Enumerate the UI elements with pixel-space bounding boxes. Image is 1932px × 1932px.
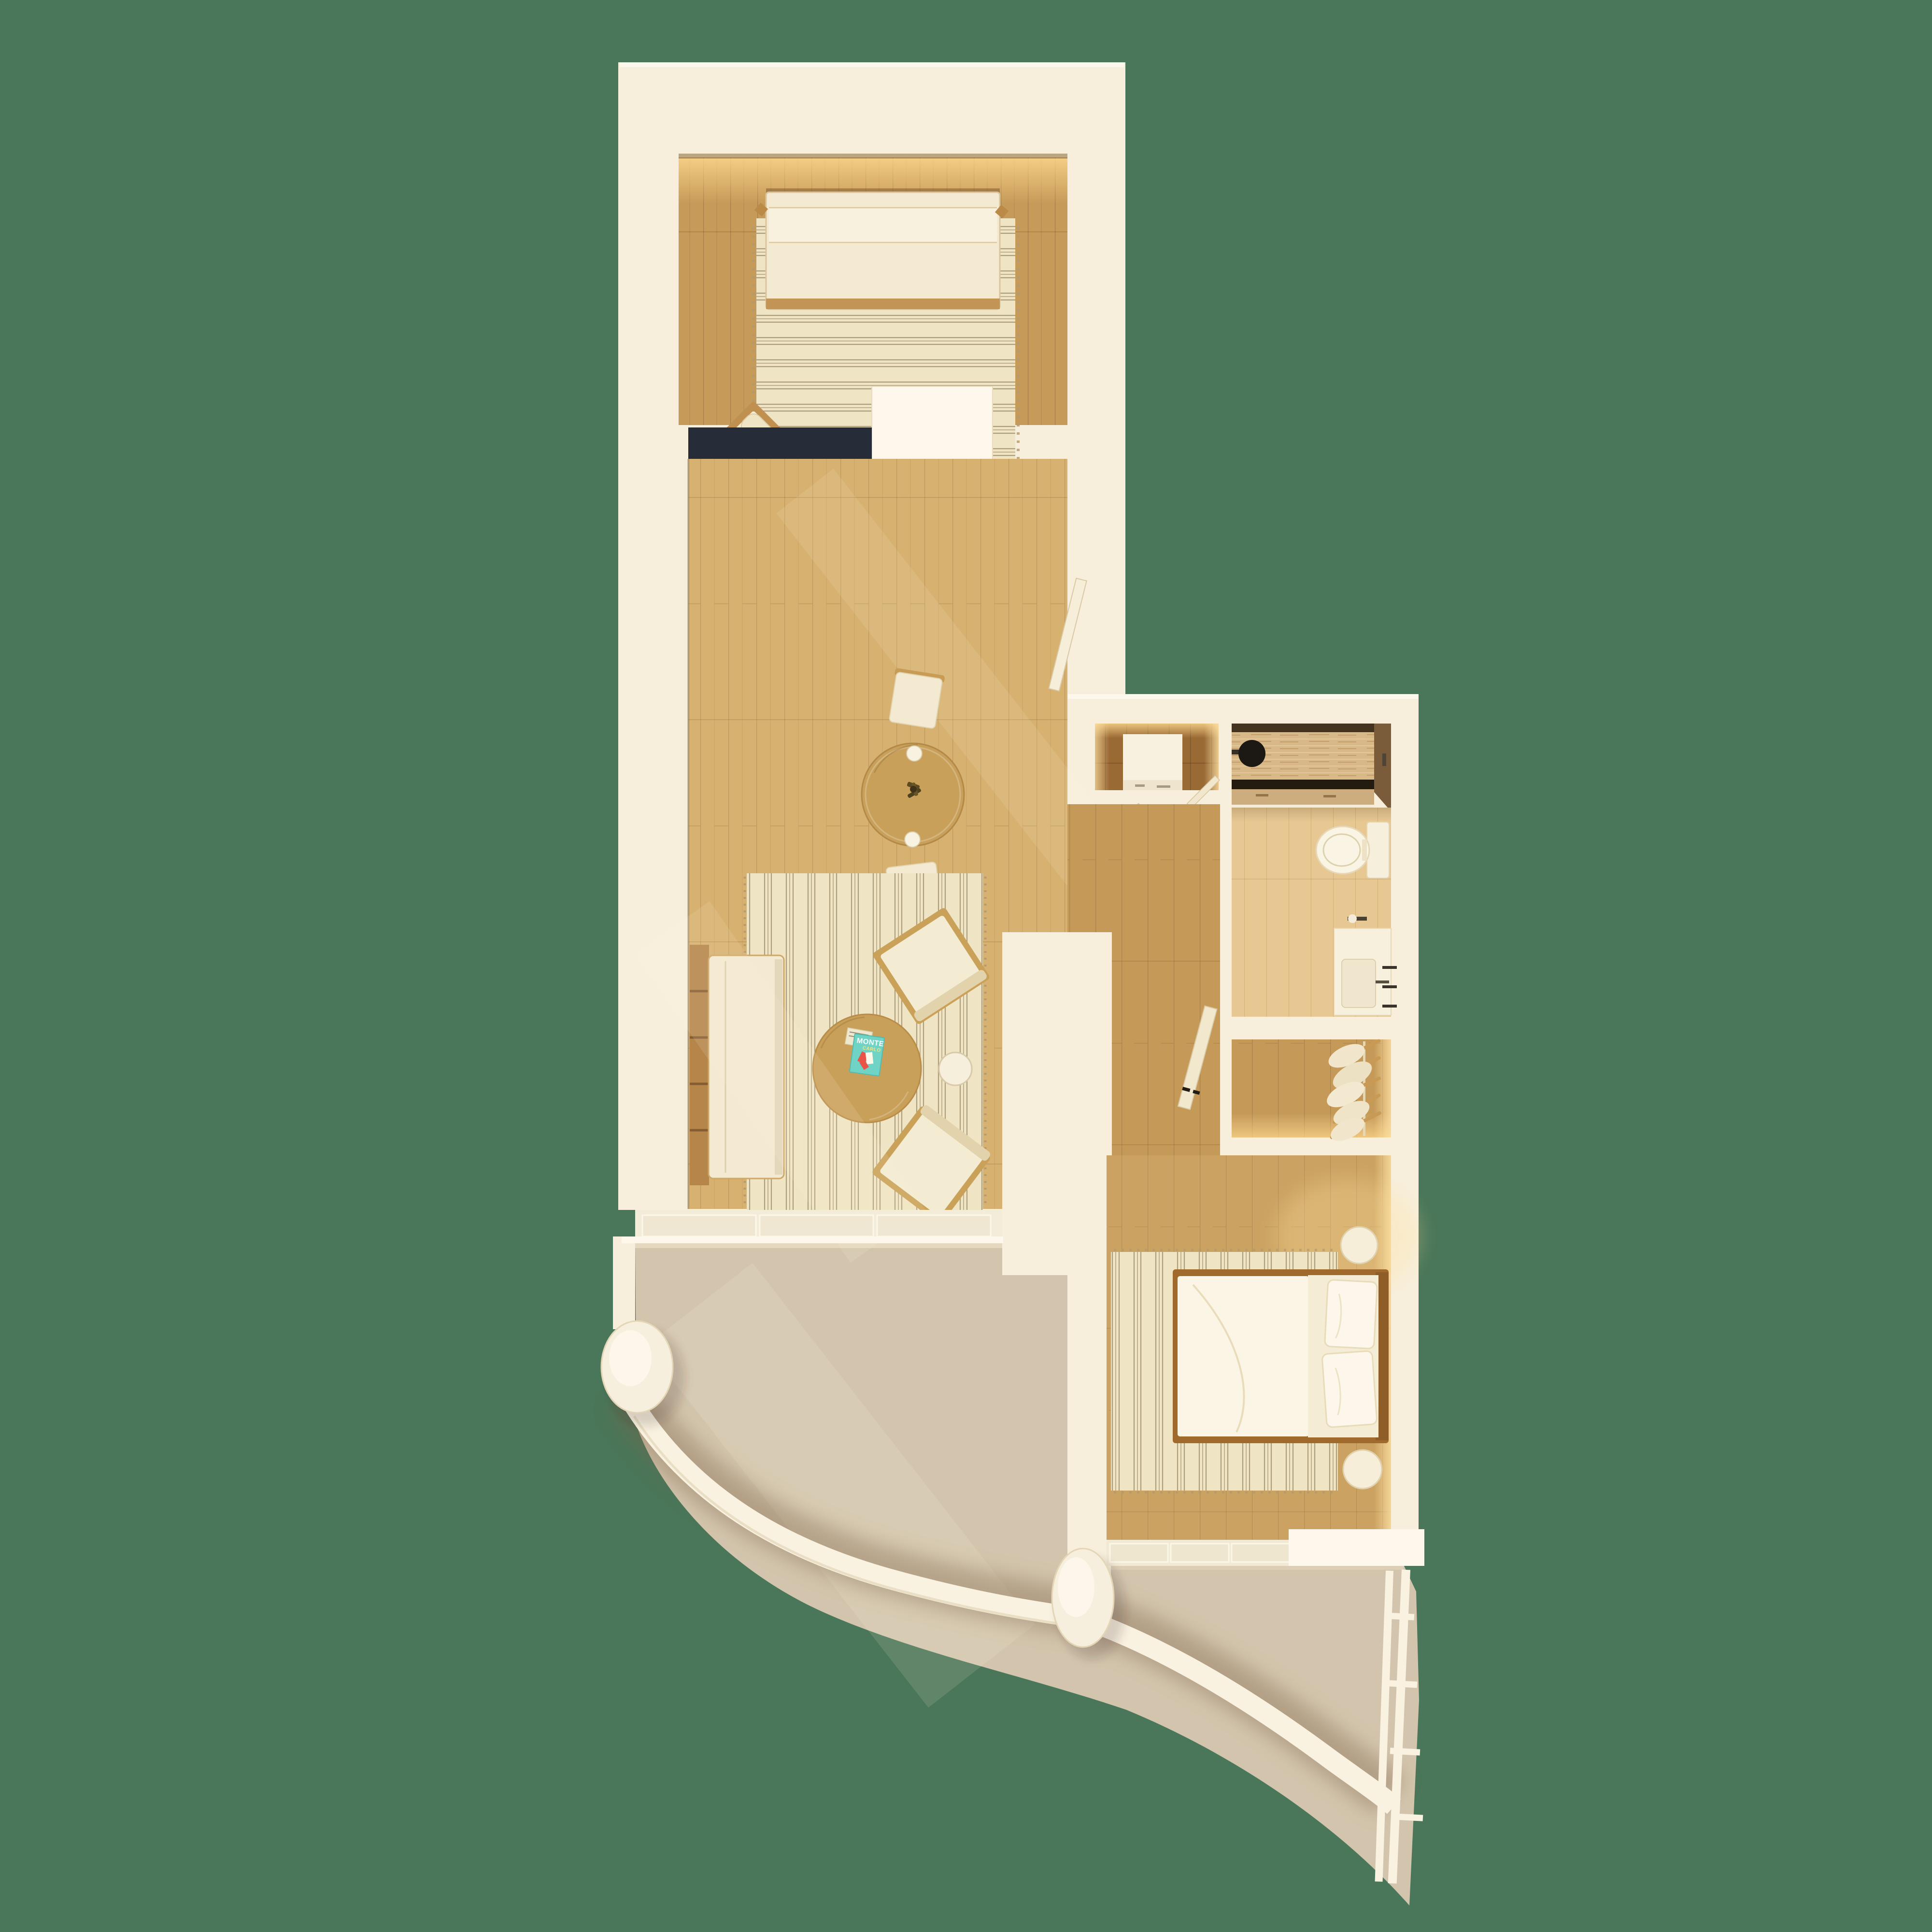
vanity <box>1334 928 1397 1015</box>
kitchen-counter-navy-top <box>688 427 872 460</box>
wall-column-living <box>1002 1210 1111 1275</box>
side-table <box>939 1052 972 1085</box>
dining-chair-top <box>887 668 945 729</box>
vestibule-cabinet <box>1123 734 1182 790</box>
pillow <box>1324 1279 1377 1349</box>
shower-niche <box>1232 780 1374 789</box>
magazine-monte-carlo: MONTE CARLO <box>850 1034 885 1076</box>
towel-bar <box>1382 1005 1397 1008</box>
nightstand <box>1341 1227 1378 1264</box>
bedroom-glass-door <box>1107 1540 1294 1566</box>
floor-plan-canvas: MONTE CARLO <box>0 0 1932 1932</box>
towel-bar <box>1382 966 1397 969</box>
bed <box>1173 1269 1389 1443</box>
cup <box>907 746 922 761</box>
living-glass-door <box>622 1210 1003 1243</box>
toilet <box>1316 822 1389 878</box>
dining-table <box>862 743 964 847</box>
wall-left-stub <box>613 1236 635 1329</box>
bedroom <box>1107 1155 1424 1566</box>
floor-plan-svg: MONTE CARLO <box>0 0 1932 1932</box>
nightstand <box>1343 1450 1382 1489</box>
closet <box>1232 1039 1391 1146</box>
pillow <box>1322 1351 1377 1428</box>
daybed <box>754 188 1009 309</box>
towel-bar <box>1382 985 1397 988</box>
wall-divider-terrace <box>1079 1275 1111 1577</box>
bathroom <box>1232 724 1397 1017</box>
cup <box>905 832 920 847</box>
shower-door-hardware <box>1382 753 1386 766</box>
planter-block <box>1289 1529 1424 1566</box>
shower-drawers <box>1232 789 1374 805</box>
